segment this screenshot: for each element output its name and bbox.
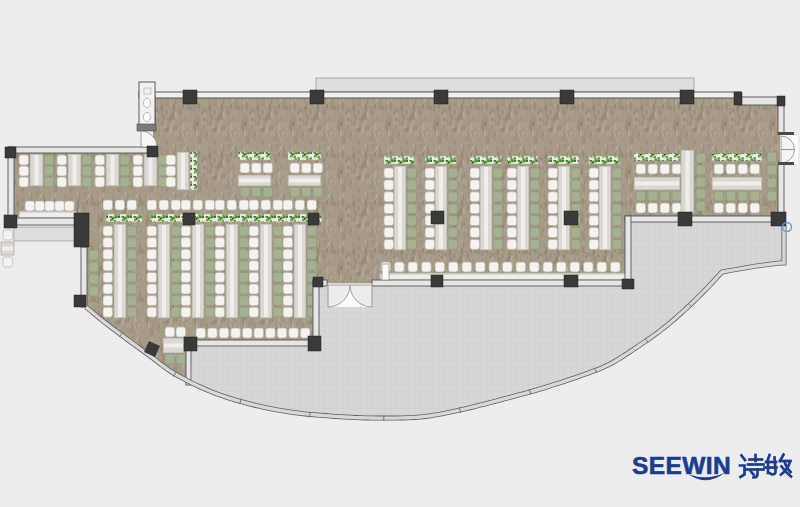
- svg-text:SEEWIN: SEEWIN: [632, 452, 731, 479]
